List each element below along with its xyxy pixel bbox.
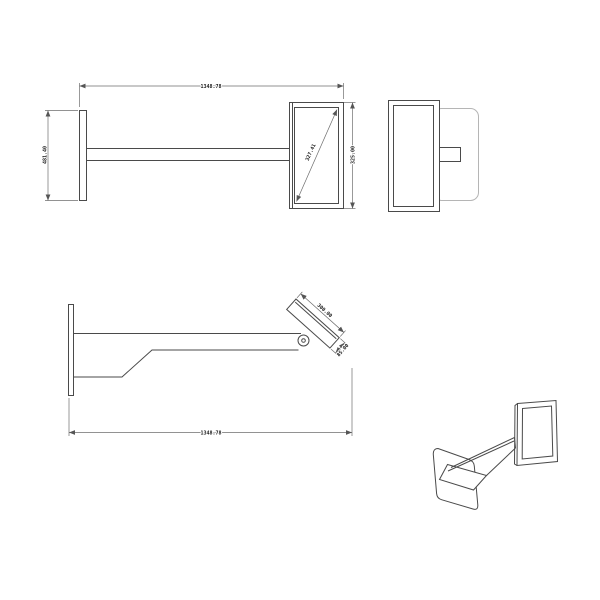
side-view — [389, 101, 479, 212]
front-panel-height-dimension: 325.00 — [344, 103, 357, 209]
profile-tilted-panel: 300.00 85.00 — [286, 289, 358, 358]
technical-drawing-sheet: 327.41 1348.78 481.40 325.00 — [0, 0, 600, 600]
profile-arm-lower-contour — [74, 350, 299, 377]
front-panel-height-label: 325.00 — [351, 146, 357, 164]
side-arm — [438, 148, 461, 162]
iso-panel — [515, 401, 558, 466]
isometric-view — [433, 401, 557, 510]
front-wall-plate — [80, 111, 87, 201]
profile-view: 300.00 85.00 1348.78 — [69, 289, 359, 436]
profile-wall-plate — [69, 305, 74, 396]
profile-panel-body — [287, 299, 340, 348]
front-view: 327.41 1348.78 481.40 325.00 — [43, 83, 357, 209]
side-panel-outer — [389, 101, 440, 212]
profile-hinge-circle — [298, 335, 309, 346]
front-overall-width-label: 1348.78 — [200, 84, 221, 90]
profile-panel-length-label: 300.00 — [316, 303, 333, 320]
profile-panel-thickness-label: 85.00 — [336, 343, 351, 358]
front-plate-height-label: 481.40 — [43, 146, 49, 164]
profile-overall-length-dimension: 1348.78 — [69, 368, 352, 436]
profile-overall-length-label: 1348.78 — [200, 430, 221, 436]
front-plate-height-dimension: 481.40 — [43, 111, 79, 201]
iso-mounting-foot — [440, 465, 487, 491]
